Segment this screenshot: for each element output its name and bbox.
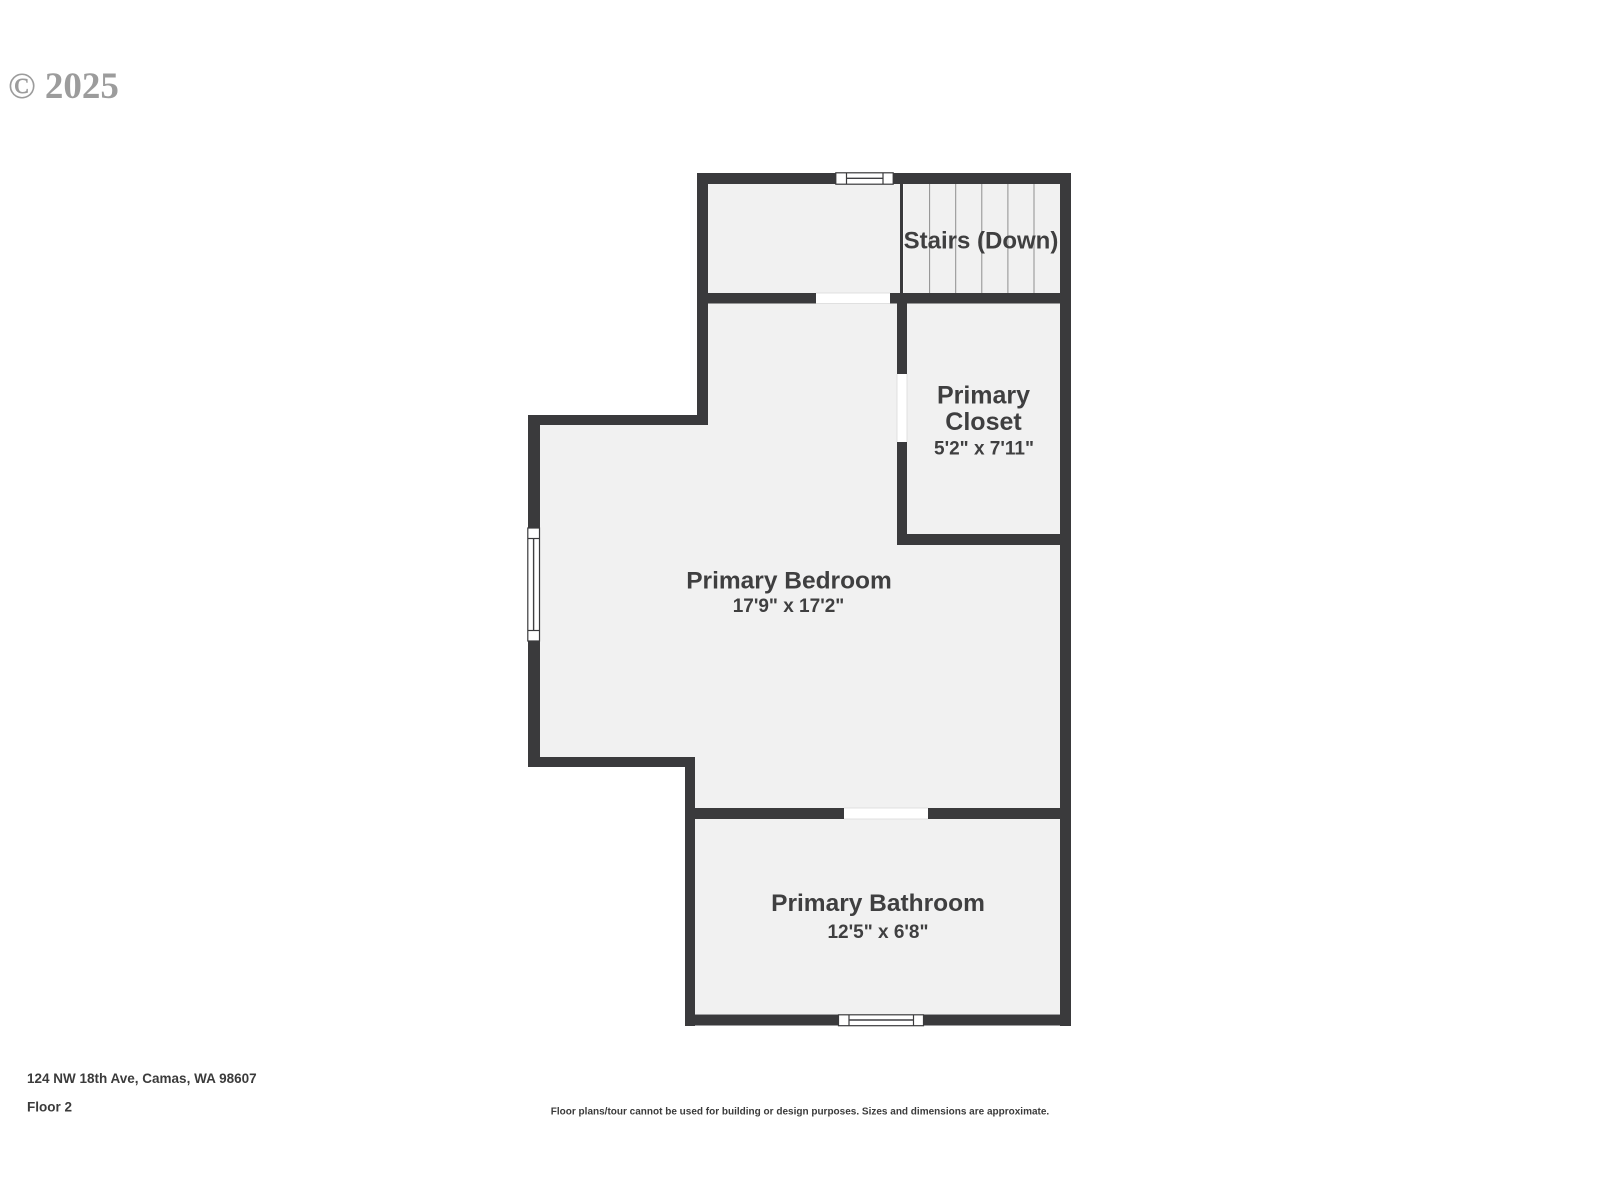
svg-text:Floor plans/tour cannot be use: Floor plans/tour cannot be used for buil… [551,1107,1050,1118]
svg-text:Stairs (Down): Stairs (Down) [904,228,1059,255]
svg-text:Closet: Closet [945,408,1022,436]
svg-text:Floor 2: Floor 2 [27,1100,72,1115]
svg-text:5'2" x 7'11": 5'2" x 7'11" [934,439,1034,460]
svg-text:124 NW 18th Ave, Camas, WA 986: 124 NW 18th Ave, Camas, WA 98607 [27,1071,257,1086]
svg-text:17'9" x 17'2": 17'9" x 17'2" [733,596,845,617]
svg-text:© 2025: © 2025 [8,66,119,107]
svg-text:12'5" x 6'8": 12'5" x 6'8" [827,922,928,943]
svg-text:Primary: Primary [937,382,1030,410]
svg-text:Primary Bedroom: Primary Bedroom [686,568,892,595]
svg-text:Primary Bathroom: Primary Bathroom [771,890,985,917]
